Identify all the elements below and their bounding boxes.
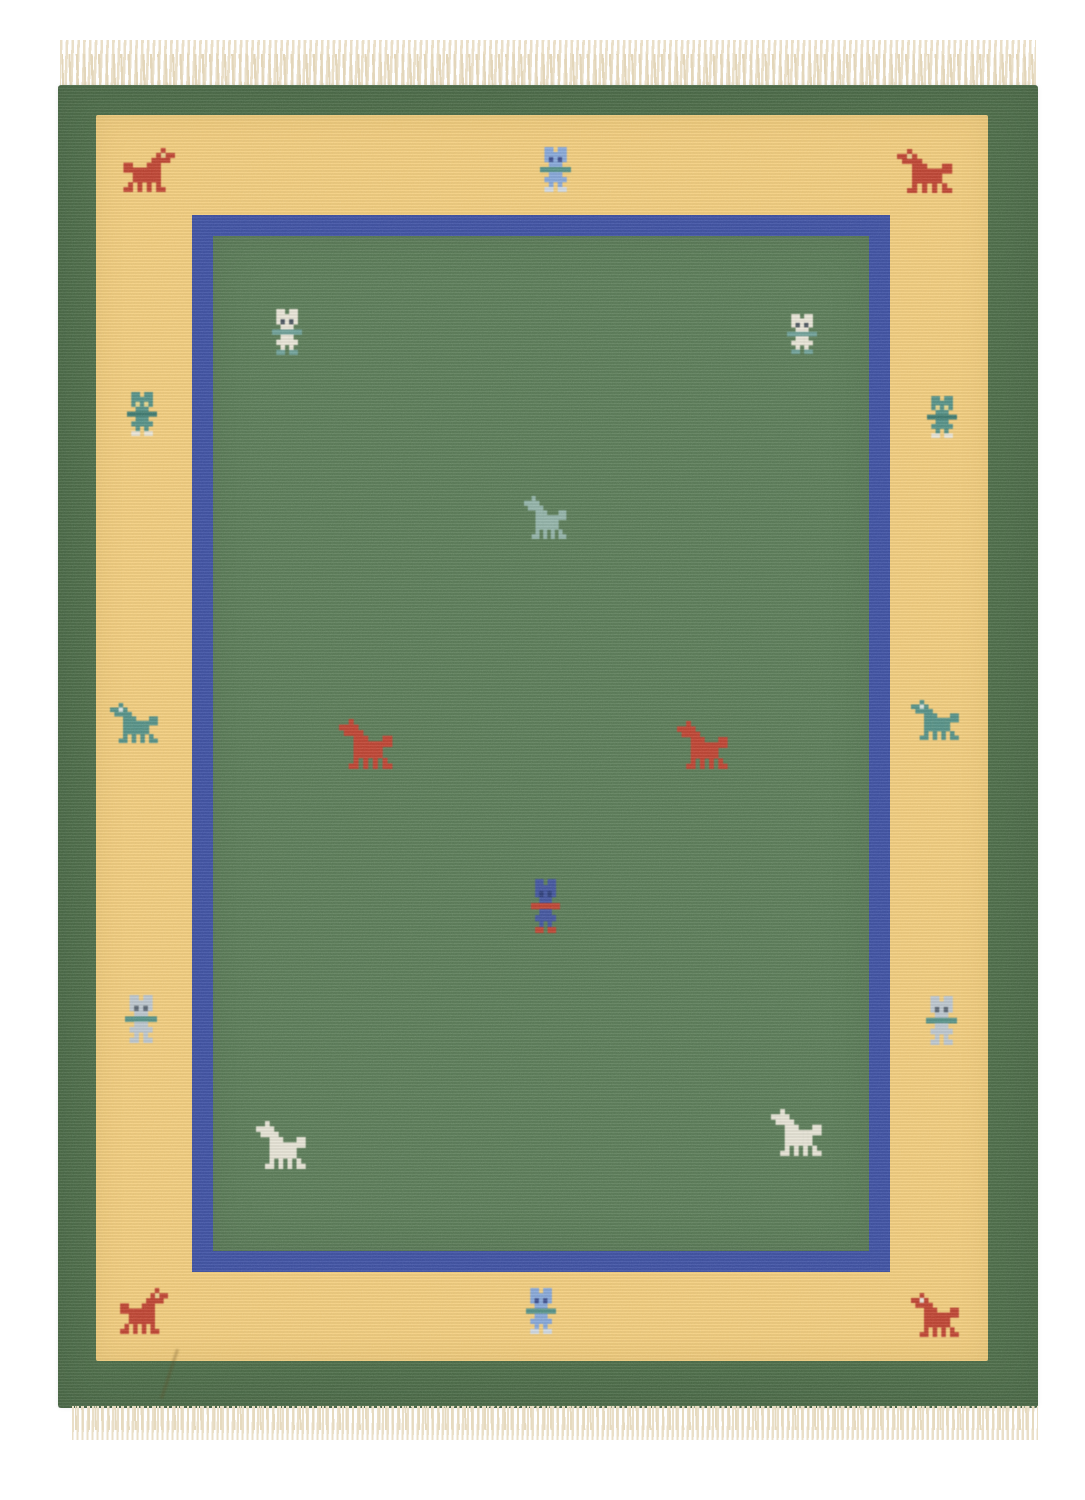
fringe-bottom-strands-layer2 [75,1406,1038,1430]
fringe-top-strands-layer2 [62,54,1036,86]
motif-red-horse-bottom-right [911,1293,963,1337]
motif-blue-person-field-center [531,879,560,933]
motif-white-person-field-top-right [787,314,817,354]
motif-red-horse-top-right [897,149,957,193]
motif-teal-horse-right-middle [911,700,963,740]
motif-light-blue-person-bottom-center [526,1288,556,1334]
motif-red-horse-field-left [339,719,397,769]
rug-product-photo [0,0,1085,1500]
motif-red-horse-top-left [119,148,175,192]
motif-pale-teal-horse-field-center [524,496,570,539]
motif-gray-person-left-lower [125,995,157,1043]
fringe-bottom [72,1406,1038,1448]
fringe-top [60,36,1036,86]
motif-teal-person-right-upper [927,396,957,438]
motif-gray-person-right-lower [926,996,957,1045]
motif-red-horse-bottom-left [116,1288,168,1334]
rug-outer-green-border [58,85,1038,1408]
motif-layer [58,85,1038,1408]
motif-white-horse-field-bottom-right [771,1109,826,1156]
motif-white-horse-field-bottom-left [256,1121,310,1169]
motif-red-horse-field-right [677,721,732,769]
motif-white-person-field-top-left [272,309,302,355]
motif-teal-person-left-upper [127,392,157,436]
motif-teal-horse-left-middle [110,703,162,743]
motif-light-blue-person-top-center [540,147,571,192]
